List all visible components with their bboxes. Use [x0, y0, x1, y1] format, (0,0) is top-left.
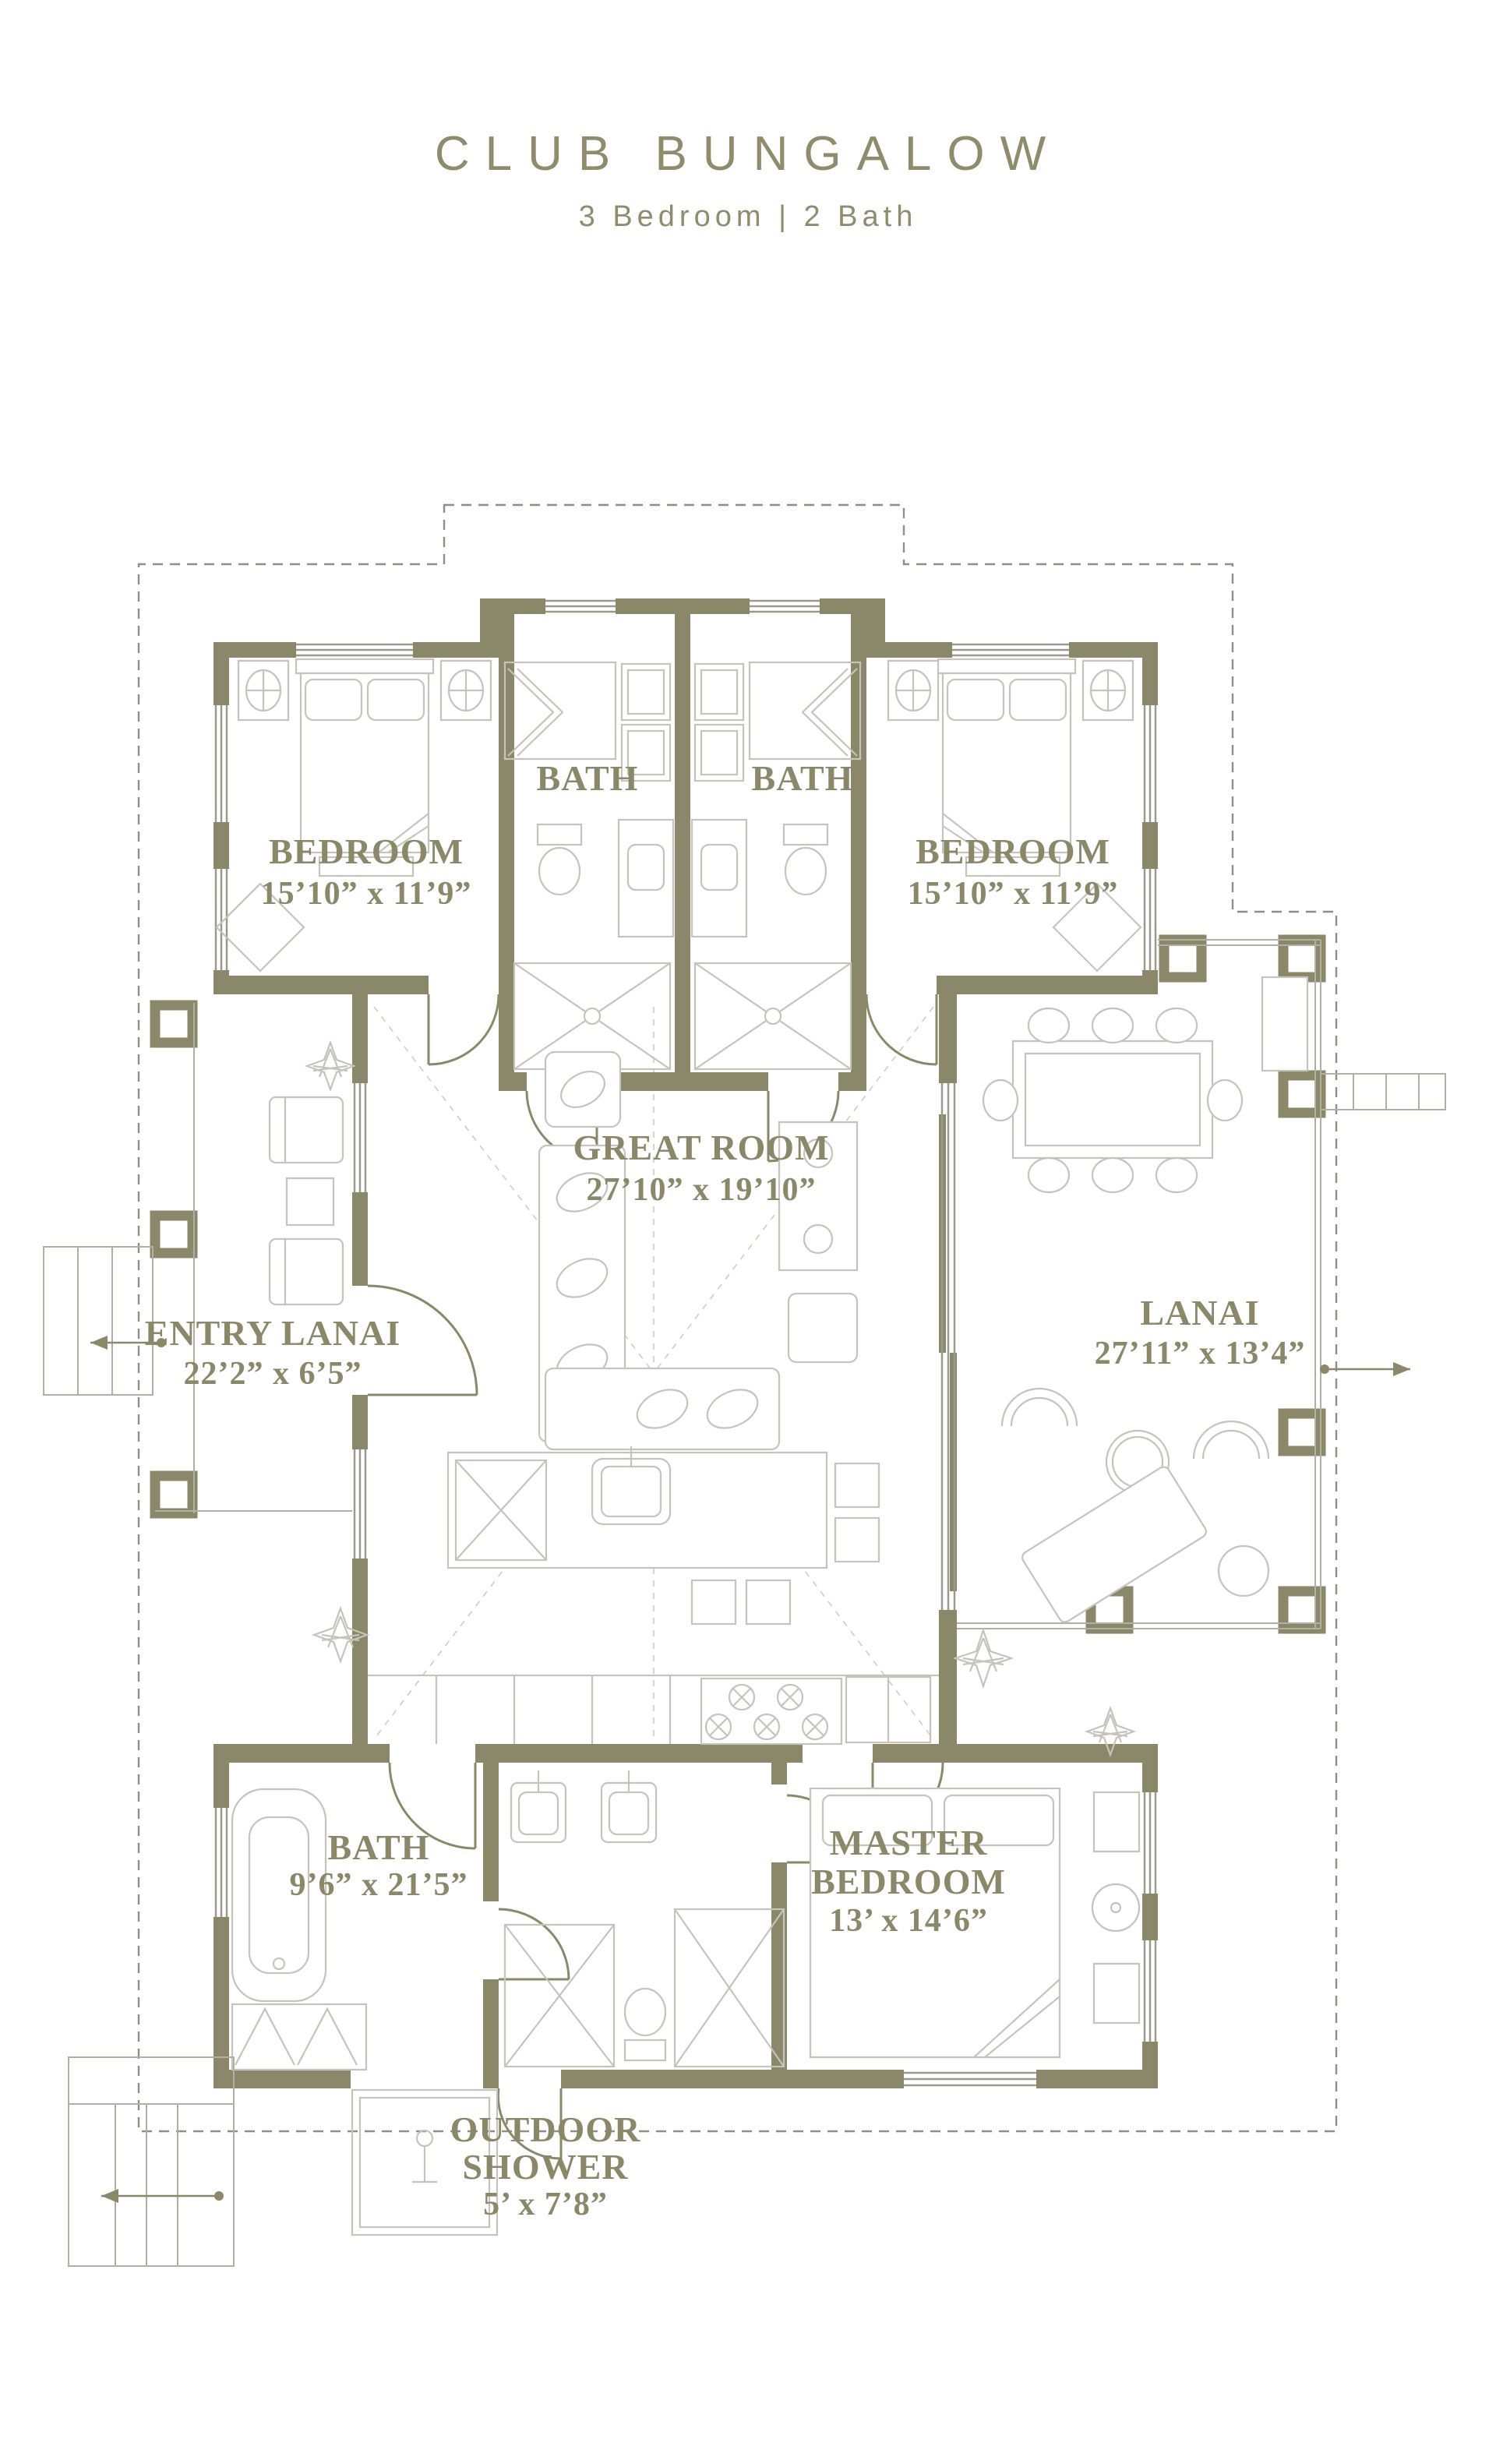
stool: [746, 1580, 790, 1624]
dining-chair: [1156, 1008, 1197, 1043]
dining-chair: [1208, 1080, 1242, 1121]
dining-chair: [1028, 1158, 1069, 1192]
page-subtitle: 3 Bedroom | 2 Bath: [579, 200, 918, 233]
range: [701, 1679, 841, 1744]
console-table: [1262, 977, 1307, 1071]
armchair: [789, 1294, 857, 1362]
fixtures-master-bath: [505, 1770, 784, 2067]
plant-icon: [307, 1043, 354, 1089]
furniture-bedroom-left: [217, 659, 491, 971]
room-label-lanai: LANAI: [1140, 1293, 1259, 1333]
stool: [835, 1463, 879, 1507]
window-bedroom-left-top: [296, 644, 413, 655]
room-label-great-room: GREAT ROOM: [573, 1128, 829, 1167]
toilet-tank: [784, 824, 827, 845]
room-label-entry-lanai: ENTRY LANAI: [145, 1313, 400, 1353]
washer-icon: [622, 664, 670, 720]
floor-plan-drawing: CLUB BUNGALOW 3 Bedroom | 2 Bath: [0, 0, 1496, 2464]
room-dims-bedroom-left: 15’10” x 11’9”: [261, 876, 472, 912]
dining-chair: [983, 1080, 1018, 1121]
dining-chair: [1156, 1158, 1197, 1192]
round-table: [1092, 1884, 1139, 1931]
lanai-area: [957, 940, 1445, 1629]
louver-closet: [232, 2004, 366, 2070]
window-bath-west: [216, 1808, 227, 1917]
dining-chair: [1028, 1008, 1069, 1043]
floor-plan-page: CLUB BUNGALOW 3 Bedroom | 2 Bath: [0, 0, 1496, 2464]
room-label-bath-master: BATH: [328, 1827, 430, 1867]
stool: [692, 1580, 736, 1624]
fixtures-bath-right: [692, 662, 860, 1069]
steps-east: [1321, 1074, 1445, 1110]
room-label-master-1: MASTER: [830, 1823, 988, 1862]
room-dims-great-room: 27’10” x 19’10”: [587, 1172, 817, 1208]
entry-lanai-area: [44, 1003, 352, 1513]
nightstand: [1094, 1964, 1139, 2023]
entry-lanai-columns: [155, 1005, 192, 1513]
stool: [835, 1518, 879, 1562]
toilet-icon: [625, 1989, 665, 2035]
window-closet-right: [750, 601, 820, 612]
room-dims-outdoor: 5’ x 7’8”: [483, 2187, 608, 2222]
dining-chair: [1092, 1158, 1133, 1192]
porch-chair: [270, 1097, 343, 1163]
room-label-bath-right: BATH: [752, 758, 854, 798]
porch-table: [287, 1178, 333, 1225]
door-bedroom-left: [429, 994, 499, 1064]
toilet-icon: [785, 848, 826, 895]
dining-chair: [1092, 1008, 1133, 1043]
lounge-chairs: [1002, 1389, 1268, 1624]
room-dims-entry-lanai: 22’2” x 6’5”: [184, 1356, 362, 1392]
furniture-bedroom-right: [888, 659, 1141, 971]
vanity: [692, 820, 746, 937]
window-closet-left: [545, 601, 616, 612]
shower-head-icon: [417, 2130, 432, 2146]
toilet-tank: [625, 2040, 665, 2060]
washer-icon: [695, 664, 743, 720]
window-bedroom-right-top: [952, 644, 1069, 655]
room-label-bedroom-right: BEDROOM: [916, 831, 1110, 871]
room-dims-master: 13’ x 14’6”: [829, 1903, 988, 1939]
room-dims-bedroom-right: 15’10” x 11’9”: [908, 876, 1119, 912]
vanity: [619, 820, 673, 937]
toilet-tank: [538, 824, 581, 845]
room-label-outdoor-2: SHOWER: [462, 2147, 628, 2187]
window-master-south: [904, 2073, 1036, 2085]
sofa: [545, 1368, 779, 1449]
room-dims-bath-master: 9’6” x 21’5”: [290, 1867, 468, 1903]
room-label-bedroom-left: BEDROOM: [269, 831, 464, 871]
steps-southwest: [69, 2057, 234, 2266]
dining-table: [1013, 1041, 1212, 1158]
dryer-icon: [695, 725, 743, 781]
furniture-great-room: [539, 1052, 857, 1449]
room-label-bath-left: BATH: [537, 758, 639, 798]
cooktop-burners: [706, 1685, 827, 1739]
room-label-outdoor-1: OUTDOOR: [450, 2109, 641, 2149]
plant-icon: [955, 1630, 1011, 1686]
toilet-icon: [539, 848, 580, 895]
door-bath-to-masterbath: [499, 1909, 569, 1979]
room-label-master-2: BEDROOM: [811, 1862, 1006, 1901]
armchair: [545, 1052, 620, 1127]
page-title: CLUB BUNGALOW: [435, 127, 1061, 181]
kitchen-island: [448, 1453, 827, 1568]
door-bedroom-right: [866, 994, 937, 1064]
room-dims-lanai: 27’11” x 13’4”: [1095, 1336, 1306, 1371]
nightstand: [1094, 1792, 1139, 1852]
porch-chair: [270, 1239, 343, 1304]
steps-west: [44, 1247, 153, 1395]
fixtures-bath-left: [505, 662, 673, 1069]
